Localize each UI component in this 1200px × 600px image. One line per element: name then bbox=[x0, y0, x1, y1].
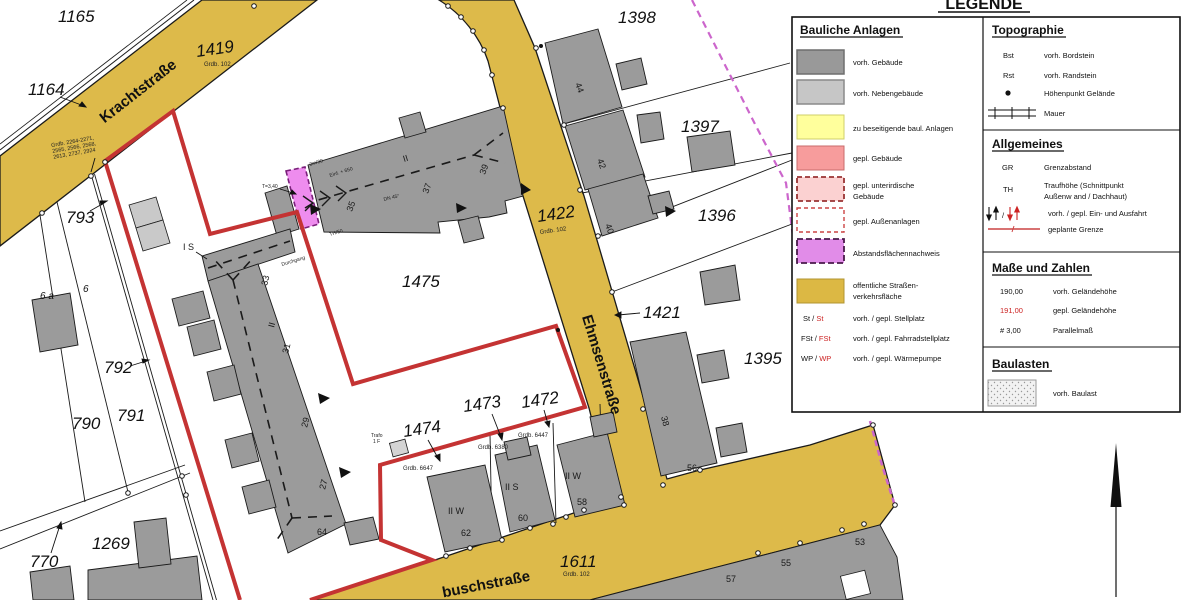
svg-text:57: 57 bbox=[726, 574, 736, 584]
svg-text:Höhenpunkt Gelände: Höhenpunkt Gelände bbox=[1044, 89, 1115, 98]
svg-text:vorh. Baulast: vorh. Baulast bbox=[1053, 389, 1098, 398]
svg-text:Grdb. 6647: Grdb. 6647 bbox=[403, 466, 434, 472]
svg-text:790: 790 bbox=[72, 414, 101, 433]
svg-text:Außenw and / Dachhaut): Außenw and / Dachhaut) bbox=[1044, 192, 1127, 201]
svg-text:Grenzabstand: Grenzabstand bbox=[1044, 163, 1091, 172]
svg-text:vorh. / gepl. Fahrradstellplat: vorh. / gepl. Fahrradstellplatz bbox=[853, 334, 950, 343]
svg-text:TH: TH bbox=[1003, 185, 1013, 194]
svg-text:Allgemeines: Allgemeines bbox=[992, 137, 1063, 151]
svg-text:1269: 1269 bbox=[92, 534, 130, 553]
svg-text:T=3,40: T=3,40 bbox=[262, 184, 278, 190]
svg-text:gepl. Geländehöhe: gepl. Geländehöhe bbox=[1053, 306, 1116, 315]
svg-text:55: 55 bbox=[781, 558, 791, 568]
svg-text:I S: I S bbox=[183, 242, 194, 252]
svg-text:792: 792 bbox=[104, 358, 133, 377]
svg-text:FSt / FSt: FSt / FSt bbox=[801, 334, 832, 343]
svg-text:Baulasten: Baulasten bbox=[992, 357, 1049, 371]
svg-text:Abstandsflächennachweis: Abstandsflächennachweis bbox=[853, 249, 940, 258]
svg-text:vorh. Bordstein: vorh. Bordstein bbox=[1044, 51, 1094, 60]
svg-text:Bst: Bst bbox=[1003, 51, 1015, 60]
svg-text:II W: II W bbox=[448, 506, 465, 516]
svg-text:WP / WP: WP / WP bbox=[801, 354, 831, 363]
svg-text:1164: 1164 bbox=[28, 80, 65, 99]
svg-text:Rst: Rst bbox=[1003, 71, 1015, 80]
svg-text:6 a: 6 a bbox=[40, 291, 54, 302]
svg-text:56: 56 bbox=[687, 463, 697, 473]
svg-text:Gebäude: Gebäude bbox=[853, 192, 884, 201]
svg-text:64: 64 bbox=[317, 527, 327, 537]
svg-text:1421: 1421 bbox=[643, 303, 681, 322]
svg-text:LEGENDE: LEGENDE bbox=[945, 0, 1023, 13]
svg-text:vorh. / gepl. Ein- und Ausfahr: vorh. / gepl. Ein- und Ausfahrt bbox=[1048, 209, 1148, 218]
svg-text:191,00: 191,00 bbox=[1000, 306, 1023, 315]
svg-text:6: 6 bbox=[83, 284, 89, 295]
svg-text:geplante Grenze: geplante Grenze bbox=[1048, 225, 1103, 234]
svg-text:1398: 1398 bbox=[618, 8, 656, 27]
svg-text:vorh. / gepl. Wärmepumpe: vorh. / gepl. Wärmepumpe bbox=[853, 354, 941, 363]
svg-text:Topographie: Topographie bbox=[992, 23, 1064, 37]
svg-text:Grdb. 6380: Grdb. 6380 bbox=[478, 445, 509, 451]
svg-text:gepl. Außenanlagen: gepl. Außenanlagen bbox=[853, 217, 920, 226]
svg-text:offentliche Straßen-: offentliche Straßen- bbox=[853, 281, 919, 290]
svg-text:Grdb. 102: Grdb. 102 bbox=[563, 572, 590, 578]
svg-text:gepl. unterirdische: gepl. unterirdische bbox=[853, 181, 914, 190]
svg-text:vorh. / gepl. Stellplatz: vorh. / gepl. Stellplatz bbox=[853, 314, 925, 323]
svg-text:1397: 1397 bbox=[681, 117, 719, 136]
svg-text:Traufhöhe (Schnittpunkt: Traufhöhe (Schnittpunkt bbox=[1044, 181, 1125, 190]
svg-text:Grdb. 102: Grdb. 102 bbox=[204, 62, 231, 68]
svg-text:St / St: St / St bbox=[803, 314, 824, 323]
svg-text:770: 770 bbox=[30, 552, 59, 571]
svg-text:vorh. Randstein: vorh. Randstein bbox=[1044, 71, 1097, 80]
svg-text:1 F: 1 F bbox=[373, 439, 380, 445]
svg-text:1165: 1165 bbox=[58, 7, 95, 26]
svg-text:II S: II S bbox=[505, 482, 519, 492]
svg-text:Grdb. 6447: Grdb. 6447 bbox=[518, 433, 549, 439]
svg-text:1396: 1396 bbox=[698, 206, 736, 225]
svg-text:58: 58 bbox=[577, 497, 587, 507]
svg-text:vorh. Gebäude: vorh. Gebäude bbox=[853, 58, 903, 67]
svg-text:verkehrsfläche: verkehrsfläche bbox=[853, 292, 902, 301]
svg-text:II W: II W bbox=[565, 471, 582, 481]
svg-text:vorh. Nebengebäude: vorh. Nebengebäude bbox=[853, 89, 923, 98]
svg-text:53: 53 bbox=[855, 537, 865, 547]
svg-text:# 3,00: # 3,00 bbox=[1000, 326, 1021, 335]
svg-text:190,00: 190,00 bbox=[1000, 287, 1023, 296]
svg-text:Maße und Zahlen: Maße und Zahlen bbox=[992, 261, 1090, 275]
svg-text:Mauer: Mauer bbox=[1044, 109, 1066, 118]
svg-text:vorh. Geländehöhe: vorh. Geländehöhe bbox=[1053, 287, 1117, 296]
svg-text:1611: 1611 bbox=[560, 552, 597, 571]
svg-text:62: 62 bbox=[461, 528, 471, 538]
svg-text:791: 791 bbox=[117, 406, 145, 425]
svg-text:1395: 1395 bbox=[744, 349, 782, 368]
svg-text:Parallelmaß: Parallelmaß bbox=[1053, 326, 1093, 335]
svg-text:GR: GR bbox=[1002, 163, 1014, 172]
svg-text:1475: 1475 bbox=[402, 272, 440, 291]
svg-text:60: 60 bbox=[518, 513, 528, 523]
svg-text:Bauliche Anlagen: Bauliche Anlagen bbox=[800, 23, 900, 37]
svg-text:gepl. Gebäude: gepl. Gebäude bbox=[853, 154, 902, 163]
svg-text:zu beseitigende baul. Anlagen: zu beseitigende baul. Anlagen bbox=[853, 124, 953, 133]
